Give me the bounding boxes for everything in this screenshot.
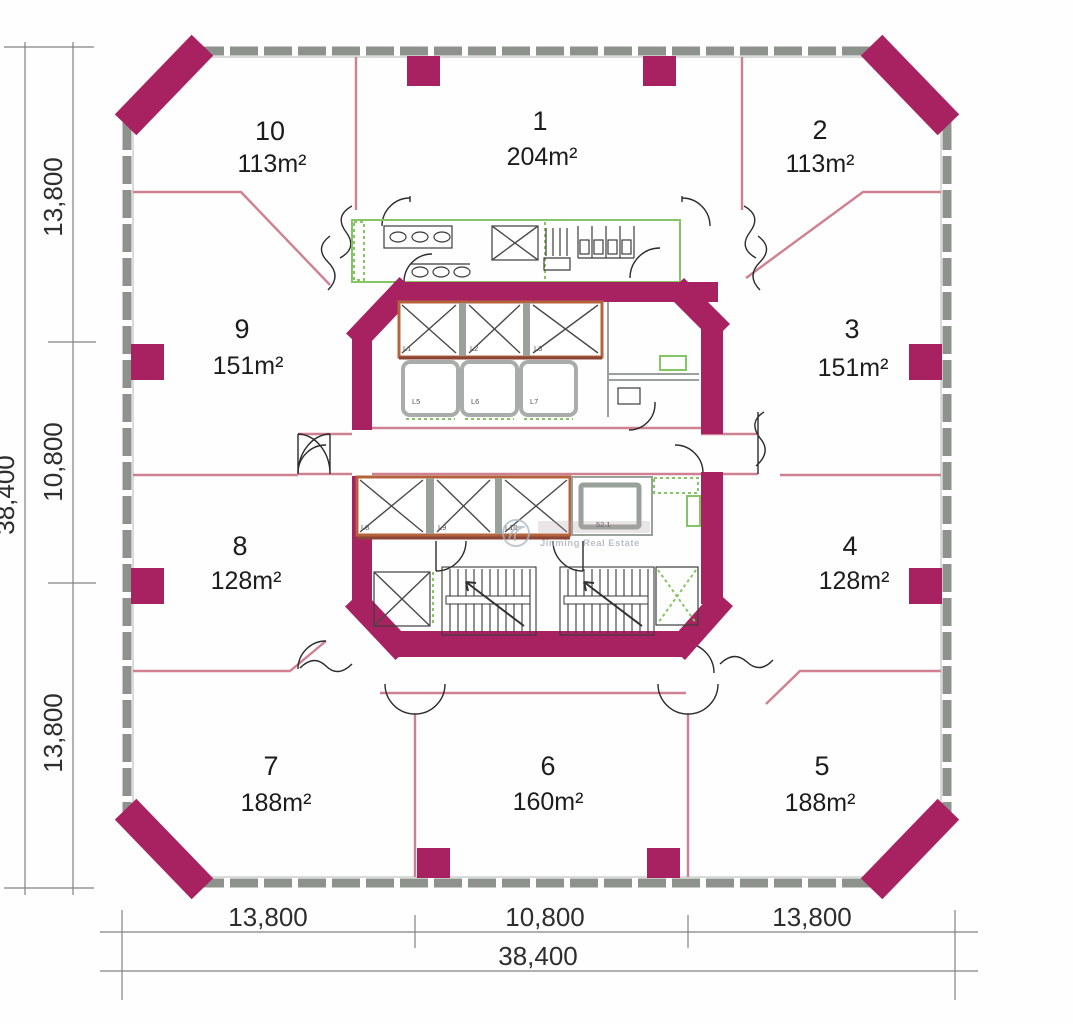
corner-wall-top-right [882, 56, 938, 114]
partition-2-3 [746, 192, 941, 278]
sink [434, 232, 450, 242]
unit-6-number: 6 [540, 751, 555, 781]
elevator-car [521, 362, 576, 415]
unit-8-area: 128m² [211, 567, 282, 595]
unit-10-number: 10 [255, 116, 285, 146]
unit-7-number: 7 [263, 751, 278, 781]
door-corridor-west [298, 434, 330, 474]
central-core: L1 L2 L3 L5 L6 L7 [352, 220, 723, 657]
sink-counter [384, 226, 452, 248]
unit-4-number: 4 [842, 531, 857, 561]
unit-6-area: 160m² [513, 788, 584, 816]
dim-left-seg-top: 13,800 [38, 157, 68, 237]
core-wall-north-band [394, 282, 718, 302]
elevator-car [462, 362, 517, 415]
partition-10-9 [133, 192, 330, 285]
door-corridor-east [755, 412, 765, 474]
door-unit6-east [658, 684, 718, 714]
dim-left-seg-mid: 10,800 [38, 422, 68, 502]
shaft-label: L8 [361, 523, 369, 532]
door-unit10-entry [340, 206, 352, 258]
dim-bottom-seg-right: 13,800 [772, 902, 852, 932]
unit-5-area: 188m² [785, 789, 856, 817]
elevator-car-label: L7 [530, 397, 538, 406]
door-unit6-west [385, 684, 445, 714]
door-machine-room [629, 402, 655, 430]
column [909, 568, 942, 604]
stair-east [560, 567, 654, 635]
unit-7-area: 188m² [241, 789, 312, 817]
core-wall-east-upper [701, 318, 723, 434]
door-restroom-left [404, 254, 432, 282]
door-restroom-right-entry [682, 196, 710, 226]
core-wall-sw-chamfer [362, 607, 396, 643]
column [909, 344, 942, 380]
watermark-blur-bar [538, 521, 650, 533]
unit-1-area: 204m² [507, 143, 578, 171]
unit-9-number: 9 [234, 314, 249, 344]
floor-plan-page: 13,800 10,800 13,800 38,400 13,800 10,80… [0, 0, 1073, 1024]
partition-8-7 [133, 641, 326, 671]
core-wall-east-lower [701, 472, 723, 604]
door-restroom-left-entry [382, 196, 410, 226]
corner-wall-top-left [136, 56, 192, 114]
corner-wall-bottom-left [136, 820, 192, 878]
unit-8-number: 8 [232, 531, 247, 561]
dim-bottom-seg-left: 13,800 [228, 902, 308, 932]
toilet-stalls [578, 226, 634, 258]
column [417, 848, 450, 878]
corner-wall-bottom-right [882, 820, 938, 878]
column [643, 56, 676, 86]
sink [454, 267, 470, 277]
unit-2-area: 113m² [785, 150, 854, 178]
unit-2-number: 2 [812, 115, 827, 145]
core-wall-nw-chamfer [363, 294, 400, 333]
floor-plan-drawing: 13,800 10,800 13,800 38,400 13,800 10,80… [0, 0, 1073, 1024]
unit-4-area: 128m² [819, 567, 890, 595]
door-unit4-corridor [675, 445, 703, 473]
sink [412, 232, 428, 242]
shaft-label: L9 [438, 523, 446, 532]
unit-3-number: 3 [844, 314, 859, 344]
door-unit8-corridor [298, 445, 326, 473]
restrooms [352, 220, 680, 282]
unit-3-area: 151m² [818, 354, 889, 382]
sink [433, 267, 449, 277]
elevator-car-label: L5 [412, 397, 420, 406]
partition-4-5 [766, 671, 941, 704]
unit-labels: 1 204m² 2 113m² 3 151m² 4 128m² 5 188m² … [211, 106, 890, 817]
unit-1-number: 1 [532, 106, 547, 136]
dim-bottom-total: 38,400 [498, 941, 578, 971]
column [131, 568, 164, 604]
urinals [544, 228, 570, 270]
shaft-label: L1 [403, 344, 411, 353]
unit-5-number: 5 [814, 751, 829, 781]
sink [390, 232, 406, 242]
sink [412, 267, 428, 277]
corridor-east-mouth [701, 434, 758, 474]
watermark-text: Jinming Real Estate [540, 538, 640, 549]
dimension-bottom: 13,800 10,800 13,800 38,400 [100, 902, 978, 1000]
elevator-car-label: L6 [471, 397, 479, 406]
core-wall-west-upper [352, 336, 372, 430]
shaft-label: L2 [470, 344, 478, 353]
unit-10-area: 113m² [237, 150, 306, 178]
elevator-bank-upper: L1 L2 L3 L5 L6 L7 [399, 302, 699, 419]
column [131, 344, 164, 380]
stairwells [374, 567, 698, 635]
elevator-car [403, 362, 458, 415]
dimension-left: 13,800 10,800 13,800 38,400 [0, 42, 96, 895]
column [647, 848, 680, 878]
shaft-label: L3 [534, 344, 542, 353]
dim-left-seg-bottom: 13,800 [38, 693, 68, 773]
unit-9-area: 151m² [213, 352, 284, 380]
stair-west [442, 567, 536, 635]
door-unit5-entry [684, 643, 773, 673]
door-unit2-entry [744, 206, 756, 258]
dim-bottom-seg-mid: 10,800 [505, 902, 585, 932]
column [407, 56, 440, 86]
dim-left-total: 38,400 [0, 455, 20, 535]
